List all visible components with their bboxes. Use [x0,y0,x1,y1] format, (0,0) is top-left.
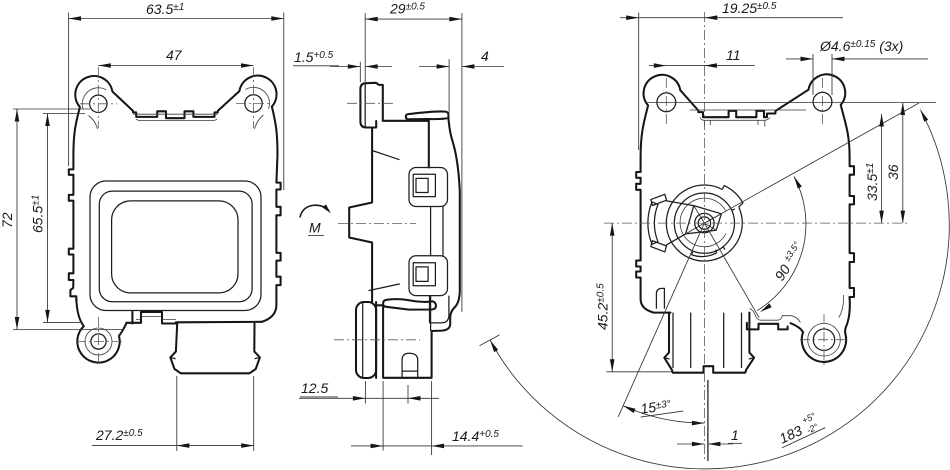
svg-text:11: 11 [726,47,741,63]
svg-text:47: 47 [166,47,183,63]
svg-text:36: 36 [885,164,901,180]
svg-text:12.5: 12.5 [301,380,328,396]
svg-text:72: 72 [0,212,15,228]
svg-text:1: 1 [731,427,739,443]
svg-text:4: 4 [481,48,489,64]
svg-text:M: M [309,220,321,236]
